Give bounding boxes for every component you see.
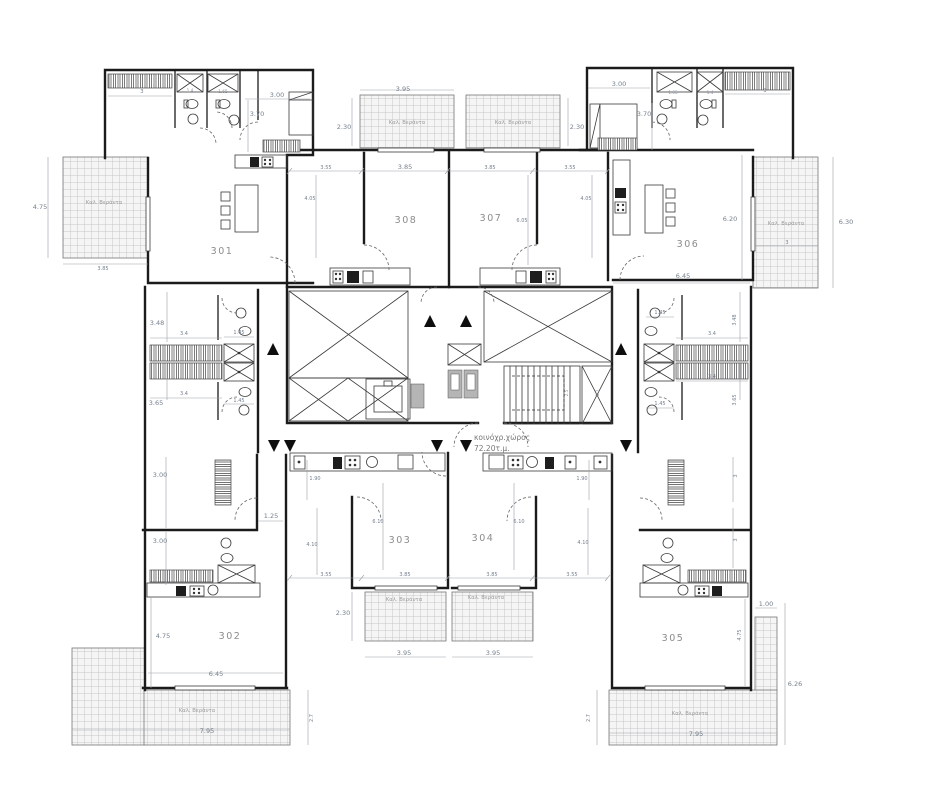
dim-label: 3.4: [708, 331, 716, 337]
dim-label: 3.4: [180, 331, 188, 337]
dim-label: 3.4: [180, 391, 188, 397]
dim-label: 1.2: [595, 389, 601, 396]
balcony-label: Καλ. Βεράντα: [768, 220, 805, 227]
dim-label: 6.30: [839, 218, 853, 226]
slider: [645, 686, 725, 690]
elevator-landing: [411, 384, 424, 408]
wardrobe: [263, 140, 300, 152]
down-triangle: [284, 440, 296, 452]
dim-label: 3.95: [486, 649, 500, 657]
sink: [208, 585, 218, 595]
chair: [666, 189, 675, 198]
chair: [221, 206, 230, 215]
wardrobe: [150, 570, 213, 582]
dim-label: 3.55: [320, 572, 331, 578]
slider: [751, 197, 755, 251]
dim-label: 4.05: [304, 196, 315, 202]
kitchen-counter: [290, 453, 445, 471]
room-label-307: 307: [480, 213, 503, 224]
dim-label: 1.00: [759, 600, 773, 608]
wardrobe: [150, 345, 222, 361]
balcony-label: Καλ. Βεράντα: [386, 596, 423, 603]
dim-label: 3.55: [566, 572, 577, 578]
dim-label: 3: [763, 88, 766, 94]
kitchen-island: [645, 185, 663, 233]
dim-label: 6.26: [788, 680, 802, 688]
sink: [678, 585, 688, 595]
common-area-name: κοινόχρ.χώρος: [474, 433, 530, 442]
floor-plan-canvas: 3 1.4 1.65 3.00 3.70 3.95 2.30 2.30 3.00…: [0, 0, 934, 796]
washbasin: [657, 114, 667, 124]
dim-label: 3.00: [612, 80, 626, 88]
dim-label: 1.90: [309, 476, 320, 482]
dim-label: 1.4: [187, 88, 194, 94]
dim-label: 3.85: [484, 165, 495, 171]
washbasin: [236, 308, 246, 318]
chair: [221, 220, 230, 229]
hob: [333, 271, 343, 283]
up-triangle: [460, 315, 472, 327]
room-label-304: 304: [472, 533, 495, 544]
wardrobe: [725, 72, 790, 90]
wardrobe: [676, 345, 748, 361]
shaft-left-lattice: [289, 378, 408, 421]
dim-label: 2.7: [309, 714, 315, 722]
bottom-kitchens: [290, 453, 612, 471]
elevator-left-shaft: [366, 379, 410, 419]
kitchen-counter: [480, 268, 560, 285]
dim-label: 6.10: [372, 519, 383, 525]
hob: [345, 456, 360, 469]
dim-label: 3.00: [153, 537, 167, 545]
dim-label: 3: [733, 474, 739, 477]
slider: [484, 148, 540, 152]
room-label-303: 303: [389, 535, 412, 546]
room-label-305: 305: [662, 633, 685, 644]
washbasin: [229, 115, 239, 125]
floor-plan-drawing: 3 1.4 1.65 3.00 3.70 3.95 2.30 2.30 3.00…: [0, 0, 934, 796]
dim-label: 3.85: [486, 572, 497, 578]
balcony-label: Καλ. Βεράντα: [495, 119, 532, 126]
dim-label: 3.55: [320, 165, 331, 171]
balcony-bottom-right-side: [755, 617, 777, 691]
dim-label: 1.25: [264, 512, 278, 520]
apartment-302-fixtures: [147, 460, 260, 597]
dim-label: 2.30: [337, 123, 351, 131]
toilet: [239, 388, 251, 397]
washbasin: [698, 115, 708, 125]
wardrobe: [688, 570, 746, 582]
room-label-302: 302: [219, 631, 242, 642]
dim-label: 3.95: [397, 649, 411, 657]
washbasin: [221, 538, 231, 548]
dim-label: 3.00: [270, 91, 284, 99]
dim-label: 3: [140, 89, 143, 95]
wardrobe: [668, 460, 684, 505]
hob: [695, 586, 709, 596]
room-label-308: 308: [395, 215, 418, 226]
slider: [375, 586, 437, 590]
toilet: [221, 554, 233, 563]
kitchen-counter: [147, 583, 260, 597]
dim-label: 6.20: [723, 215, 737, 223]
hob: [262, 157, 273, 167]
wardrobe: [215, 460, 231, 505]
dim-label: 3.85: [399, 572, 410, 578]
down-triangle: [268, 440, 280, 452]
wardrobe: [108, 74, 172, 88]
slider: [378, 148, 434, 152]
balconies: [63, 95, 818, 745]
down-triangle: [431, 440, 443, 452]
sliding-doors: [146, 148, 755, 690]
common-area-size: 72.20τ.μ.: [474, 444, 510, 453]
kitchen-counter: [330, 268, 410, 285]
kitchen-counter: [640, 583, 748, 597]
stair-walkline: [512, 376, 564, 410]
dim-label: 3.48: [732, 314, 738, 325]
core: [289, 291, 612, 424]
dim-label: 3.85: [398, 163, 412, 171]
slider: [146, 197, 150, 251]
dimension-lines: [48, 88, 833, 745]
washbasin: [663, 538, 673, 548]
common-area-label: κοινόχρ.χώρος 72.20τ.μ.: [474, 433, 530, 453]
down-triangle: [620, 440, 632, 452]
dim-label: 1.65: [668, 90, 678, 96]
dim-label: 1.45: [654, 401, 665, 407]
dim-label: 4.05: [580, 196, 591, 202]
apartment-305-fixtures: [640, 460, 748, 597]
walls-core: [287, 287, 612, 423]
dim-label: 2.5: [564, 389, 570, 396]
dim-label: 1.45: [233, 398, 244, 404]
wardrobe: [598, 138, 637, 150]
kitchen-island: [235, 185, 258, 232]
balcony-label: Καλ. Βεράντα: [86, 199, 123, 206]
hob: [615, 202, 626, 213]
dim-label: 3: [785, 240, 788, 246]
toilet: [645, 327, 657, 336]
toilet: [700, 100, 712, 109]
chair: [221, 192, 230, 201]
dim-label: 3.48: [150, 319, 164, 327]
dim-label: 6.45: [209, 670, 223, 678]
dim-label: 3.85: [97, 266, 108, 272]
dim-label: 3.70: [250, 110, 264, 118]
stair-treads: [510, 366, 570, 424]
sink: [367, 457, 378, 468]
wardrobe: [150, 363, 222, 379]
dim-label: 3.70: [637, 110, 651, 118]
dim-label: 3.4: [708, 374, 716, 380]
up-triangle: [267, 343, 279, 355]
chair: [666, 203, 675, 212]
balcony-label: Καλ. Βεράντα: [468, 594, 505, 601]
dim-label: 1.45: [654, 310, 665, 316]
balcony-label: Καλ. Βεράντα: [179, 707, 216, 714]
dim-label: 2.30: [336, 609, 350, 617]
dim-label: 4.75: [737, 629, 743, 640]
up-triangle: [424, 315, 436, 327]
dim-label: 2.7: [586, 714, 592, 722]
balcony-bottom-left-side: [72, 648, 145, 745]
down-triangle: [460, 440, 472, 452]
slider: [175, 686, 255, 690]
dim-label: 6.10: [513, 519, 524, 525]
toilet: [661, 554, 673, 563]
room-labels: 301 302 303 304 305 306 307 308: [211, 213, 700, 644]
dim-label: 2.30: [570, 123, 584, 131]
slider: [458, 586, 520, 590]
dim-label: 1.4: [707, 90, 714, 96]
balcony-top-left: [63, 157, 148, 258]
chair: [666, 217, 675, 226]
dim-label: 3.55: [564, 165, 575, 171]
dim-label: 1.45: [233, 330, 244, 336]
hob: [508, 456, 523, 469]
dim-label: 7.95: [200, 727, 214, 735]
hob: [190, 586, 204, 596]
apartments-307-308-kitchens: [330, 268, 560, 285]
dim-label: 3.65: [732, 394, 738, 405]
sink: [527, 457, 538, 468]
dim-label: 3.00: [153, 471, 167, 479]
dim-label: 3: [733, 538, 739, 541]
dim-label: 6.45: [676, 272, 690, 280]
kitchen-counter: [235, 155, 287, 168]
balcony-label: Καλ. Βεράντα: [389, 119, 426, 126]
dim-label: 7.95: [689, 730, 703, 738]
dim-label: 4.10: [577, 540, 588, 546]
door-arcs: [200, 112, 674, 521]
dim-label: 3.65: [149, 399, 163, 407]
balcony-bottom-left: [144, 690, 290, 745]
washbasin: [239, 405, 249, 415]
dim-label: 4.10: [306, 542, 317, 548]
balcony-label: Καλ. Βεράντα: [672, 710, 709, 717]
dim-label: 4.75: [156, 632, 170, 640]
dim-label: 1.90: [576, 476, 587, 482]
washbasin: [188, 114, 198, 124]
dim-label: 1.65: [218, 89, 228, 95]
dim-label: 6.05: [516, 218, 527, 224]
up-triangle: [615, 343, 627, 355]
toilet: [645, 388, 657, 397]
dim-label: 3.95: [396, 85, 410, 93]
hob: [546, 271, 556, 283]
toilet: [660, 100, 672, 109]
dim-label: 4.75: [33, 203, 47, 211]
room-label-301: 301: [211, 246, 234, 257]
room-label-306: 306: [677, 239, 700, 250]
